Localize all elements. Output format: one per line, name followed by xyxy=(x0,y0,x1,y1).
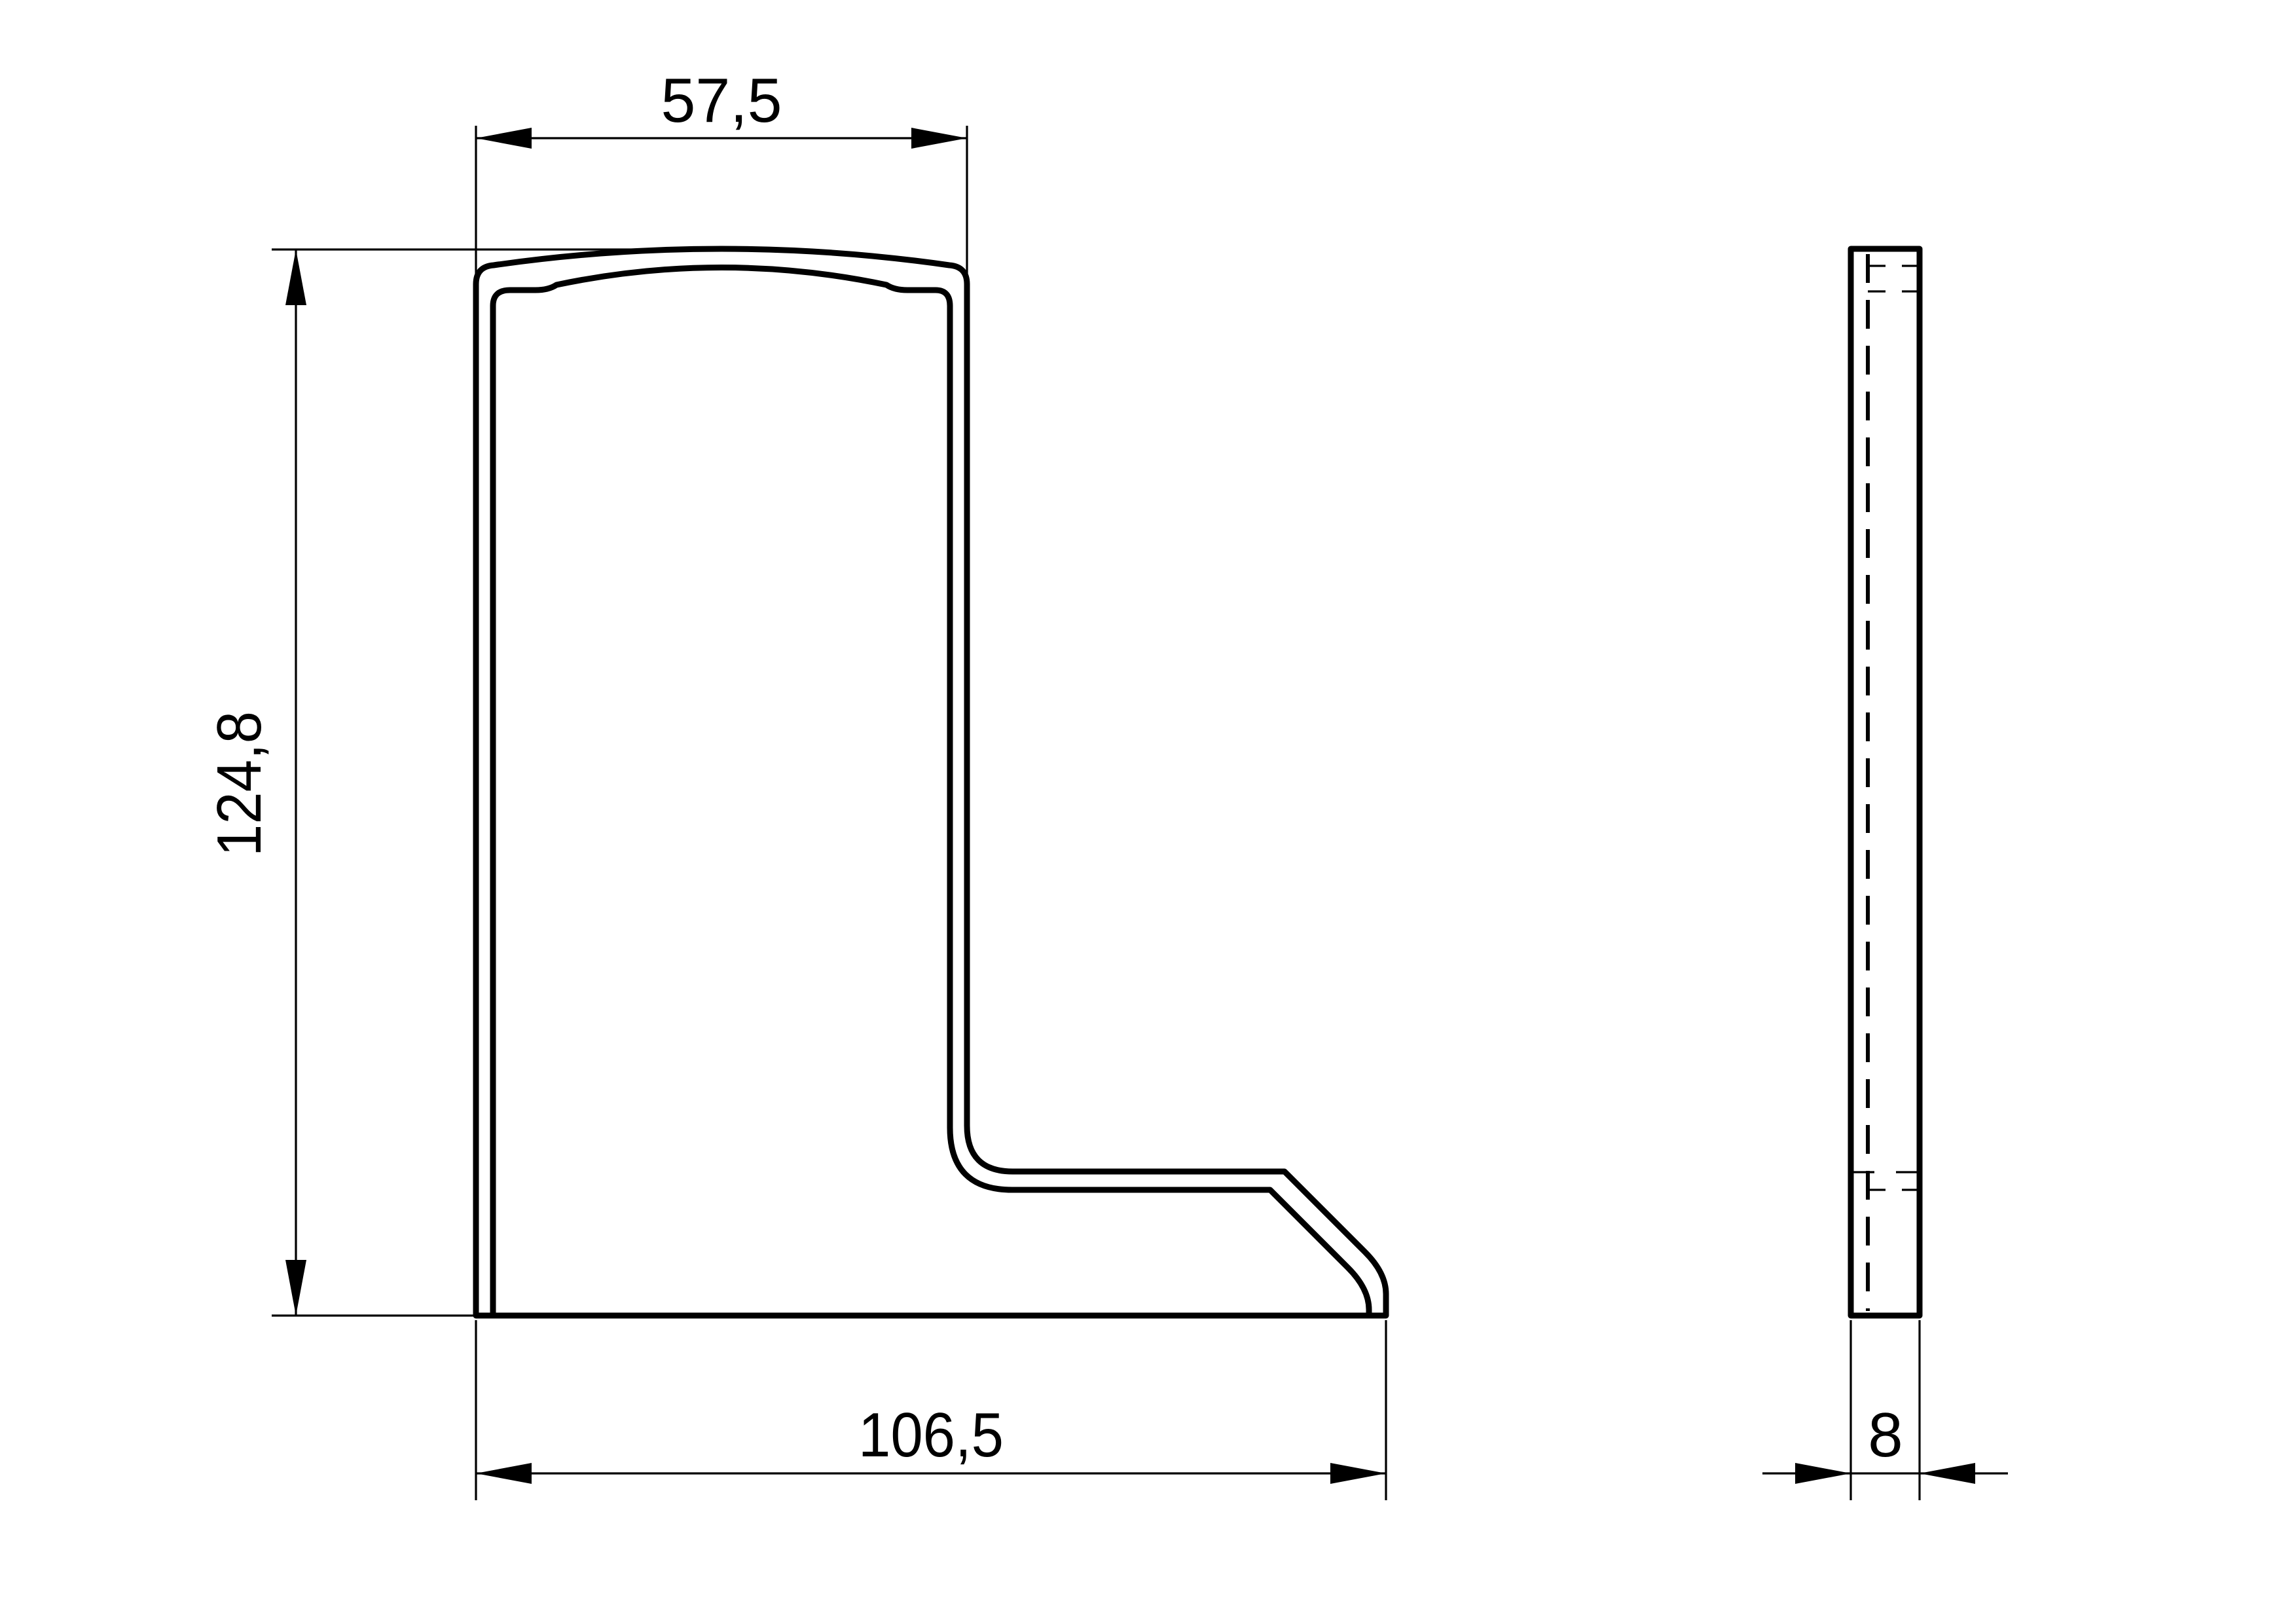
dim-label-bottom-width: 106,5 xyxy=(858,1400,1004,1470)
dim-arrow-right xyxy=(911,128,967,149)
side-view xyxy=(1851,249,1920,1316)
dimension-bottom-width: 106,5 xyxy=(476,1320,1386,1500)
front-view xyxy=(476,249,1386,1316)
front-inner-edge-contour xyxy=(493,268,1369,1316)
dimension-height: 124,8 xyxy=(204,249,728,1316)
dimension-thickness: 8 xyxy=(1762,1320,2008,1500)
dim-label-height: 124,8 xyxy=(204,711,274,857)
dim-arrow-inward-left xyxy=(1795,1463,1851,1484)
side-outline xyxy=(1851,249,1920,1316)
dim-label-thickness: 8 xyxy=(1868,1400,1903,1470)
drawing-canvas: 57,5 124,8 106,5 8 xyxy=(0,0,2296,1624)
drawing-sheet: 57,5 124,8 106,5 8 xyxy=(0,0,2296,1624)
dim-arrow-left xyxy=(476,1463,532,1484)
dim-arrow-up xyxy=(285,249,306,305)
front-outer-contour xyxy=(476,249,1386,1316)
dim-arrow-down xyxy=(285,1260,306,1316)
dimension-top-width: 57,5 xyxy=(476,65,967,276)
dim-label-top-width: 57,5 xyxy=(661,65,782,136)
dim-arrow-right xyxy=(1330,1463,1386,1484)
dim-arrow-left xyxy=(476,128,532,149)
dim-arrow-inward-right xyxy=(1920,1463,1975,1484)
